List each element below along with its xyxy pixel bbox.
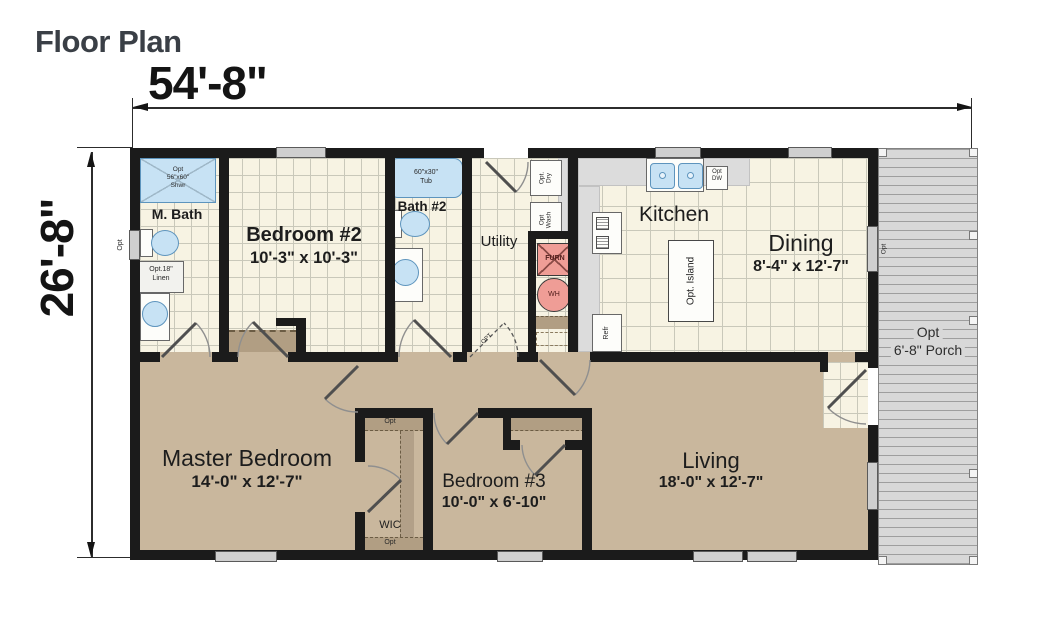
interior-wall [355,408,433,418]
room-label-wic: WIC [379,519,400,531]
window-optional [129,230,140,260]
dishwasher-label-line1: Opt [712,169,722,176]
height-dimension-text: 26'-8" [30,199,84,318]
porch-post [969,148,978,157]
room-label-master-bedroom: Master Bedroom [162,445,332,472]
interior-wall [462,158,472,352]
room-label-dining: Dining [768,230,833,257]
burner-icon [596,236,609,249]
refrigerator-label: Refr [603,326,611,339]
closet-wall [528,231,578,239]
closet-shelf [536,316,572,329]
linen-label-line1: Opt.18" [149,266,173,274]
divider-wall [453,352,467,362]
porch-post [969,556,978,565]
divider-wall [212,352,238,362]
window [655,147,701,158]
linen-label-line2: Linen [152,275,169,283]
porch-post [969,469,978,478]
window [867,226,878,272]
height-dimension-witness-top [77,147,133,148]
divider-wall [140,352,160,362]
dryer-label-line2: Dry [546,173,553,183]
divider-wall [590,352,825,362]
opt-window-label-right: Opt [880,244,887,254]
interior-wall [385,158,395,352]
dimension-arrow-right-icon [957,103,972,111]
room-label-m-bath: M. Bath [152,206,203,222]
interior-wall [355,512,365,550]
washer-label-line2: Wash [546,212,553,228]
window [215,551,277,562]
width-dimension-line [133,107,972,109]
room-size-master-bedroom: 14'-0" x 12'-7" [191,472,302,492]
closet-wall [276,318,306,326]
room-label-living: Living [682,448,739,474]
bedroom3-closet-shelf [505,418,584,431]
room-size-bedroom3: 10'-0" x 6'-10" [442,494,547,512]
furnace-label: FURN [545,255,564,263]
interior-wall [423,408,433,550]
entry-door-opening [868,368,878,425]
dimension-arrow-left-icon [133,103,148,111]
bedroom2-closet-shelf [229,330,296,352]
entry-tile-patch [823,362,868,428]
closet-wall [503,440,520,450]
divider-wall [855,352,868,362]
shower-label-line1: Opt [173,166,183,173]
dimension-arrow-down-icon [87,542,95,557]
window [693,551,743,562]
porch-post [969,231,978,240]
height-dimension-line [91,152,93,557]
interior-wall [568,158,578,352]
entry-wall-stub [820,352,828,372]
room-label-kitchen: Kitchen [639,203,709,227]
window [747,551,797,562]
mbath-sink [142,301,168,327]
closet-wall [503,418,511,440]
height-dimension-witness-bottom [77,557,133,558]
wic-shelf-top-label: Opt [384,418,395,426]
divider-wall [517,352,538,362]
shower-label-line2: 56"x60" [167,174,189,181]
toilet-bowl [400,211,430,237]
interior-wall [219,158,229,352]
porch-post [969,316,978,325]
tub-label-line2: Tub [420,178,432,186]
interior-wall [582,408,592,550]
room-size-dining: 8'-4" x 12'-7" [753,258,849,276]
sink-drain [659,172,666,179]
room-label-utility: Utility [481,233,518,250]
exterior-wall-left [130,148,140,560]
opt-window-label-left: Opt [117,239,125,250]
water-heater-label: WH [548,291,560,299]
closet-wall [565,440,592,450]
window [788,147,832,158]
porch-label-line1: Opt [914,324,943,340]
bath2-sink [392,259,419,286]
room-size-bedroom2: 10'-3" x 10'-3" [250,249,358,268]
dryer-label: Opt. Dry [539,172,554,184]
sink-drain [687,172,694,179]
optional-shelf-outline [536,332,572,346]
porch-label-line2: 6'-8" Porch [891,342,965,358]
porch-post [878,556,887,565]
wic-shelf-bottom-label: Opt [384,539,395,547]
room-label-bedroom2: Bedroom #2 [246,224,362,247]
island-label: Opt. Island [685,257,697,305]
washer-label-line1: Opt [539,215,546,225]
washer-label: Opt Wash [539,212,554,228]
utility-exterior-door-opening [484,148,528,158]
closet-wall [528,239,536,352]
divider-wall [288,352,398,362]
dimension-arrow-up-icon [87,152,95,167]
toilet-bowl [151,230,179,256]
window [867,462,878,510]
porch-post [878,148,887,157]
room-label-bath2: Bath #2 [398,199,447,214]
interior-wall [478,408,592,418]
page-title: Floor Plan [35,24,182,60]
shower-label-line3: Shwr [171,182,186,189]
wic-hanging-strip [400,431,414,537]
window [497,551,543,562]
tub-label-line1: 60"x30" [414,169,438,177]
window [276,147,326,158]
room-size-living: 18'-0" x 12'-7" [659,474,764,492]
dryer-label-line1: Opt. [539,172,546,184]
width-dimension-text: 54'-8" [148,56,267,110]
floor-plan-canvas: Floor Plan 54'-8" 26'-8" Opt 6'-8" Porch… [0,0,1050,625]
dishwasher-label-line2: DW [712,176,722,183]
burner-icon [596,217,609,230]
room-label-bedroom3: Bedroom #3 [442,471,546,493]
